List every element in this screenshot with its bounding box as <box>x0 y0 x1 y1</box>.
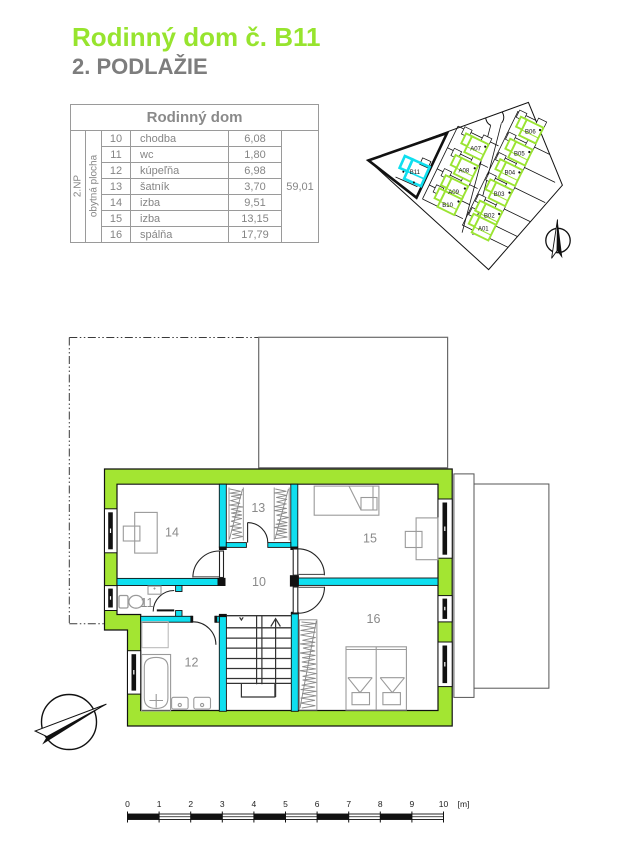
svg-text:11: 11 <box>141 596 154 610</box>
svg-text:obytná plocha: obytná plocha <box>89 154 100 217</box>
svg-text:15: 15 <box>363 532 377 546</box>
svg-text:5: 5 <box>283 799 288 809</box>
svg-text:10: 10 <box>252 575 266 589</box>
svg-text:1: 1 <box>157 799 162 809</box>
svg-text:A08: A08 <box>459 168 470 174</box>
svg-text:4: 4 <box>252 799 257 809</box>
svg-text:3: 3 <box>220 799 225 809</box>
svg-text:10: 10 <box>439 799 449 809</box>
svg-text:9: 9 <box>410 799 415 809</box>
svg-text:B03: B03 <box>494 192 505 198</box>
svg-text:B11: B11 <box>410 170 421 176</box>
svg-text:B04: B04 <box>504 170 515 176</box>
svg-text:B02: B02 <box>484 213 495 219</box>
svg-text:2.NP: 2.NP <box>73 175 84 198</box>
svg-text:A01: A01 <box>478 226 489 232</box>
svg-text:A09: A09 <box>448 190 459 196</box>
svg-text:0: 0 <box>125 799 130 809</box>
svg-text:2: 2 <box>188 799 193 809</box>
svg-text:16: 16 <box>367 612 381 626</box>
svg-text:14: 14 <box>165 526 179 540</box>
svg-text:B06: B06 <box>525 130 536 136</box>
svg-text:12: 12 <box>185 656 199 670</box>
svg-text:8: 8 <box>378 799 383 809</box>
svg-text:[m]: [m] <box>458 799 470 809</box>
svg-text:A07: A07 <box>470 146 481 152</box>
svg-text:7: 7 <box>346 799 351 809</box>
svg-text:B05: B05 <box>514 152 525 158</box>
svg-text:B10: B10 <box>442 203 453 209</box>
svg-text:6: 6 <box>315 799 320 809</box>
svg-text:13: 13 <box>251 501 265 515</box>
